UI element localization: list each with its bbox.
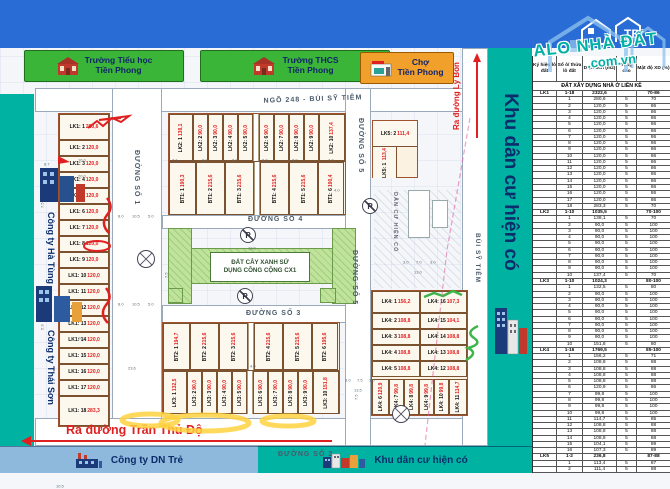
lot: BT1: 1190,3 [169, 162, 196, 215]
lot-code: LK1: 1 [70, 124, 85, 130]
lot: BT2: 5215,6 [283, 323, 312, 370]
lot-code: LK3: 2 [192, 390, 198, 405]
lot-code: LK4: 13 [428, 350, 446, 356]
lot-code: LK2: 5 [243, 135, 249, 150]
landmark-market: Chợ Tiền Phong [360, 52, 454, 84]
lot: BT1: 6190,4 [318, 162, 344, 215]
dimension-label: 10.5 [56, 484, 64, 489]
market-name: Chợ [412, 57, 429, 67]
landmark-primary-school: Trường Tiểu học Tiền Phong [24, 50, 184, 82]
dimension-label: 8.0 [292, 158, 298, 163]
lot: LK3: 590,0 [232, 371, 247, 414]
lot-code: LK3: 9 [303, 390, 309, 405]
dimension-label: 5.0 [148, 302, 154, 307]
dimension-label: 8.7 [44, 162, 50, 167]
lot-code: BT2: 6 [322, 346, 328, 361]
lot-area: 137,4 [329, 122, 335, 135]
block-lk5: LK5: 2 111,4 LK5: 1 113,4 [372, 120, 418, 178]
lot-area: 90,0 [222, 379, 228, 389]
dimension-label: 7.0 [416, 260, 422, 265]
lot-area: 90,0 [207, 379, 213, 389]
lot: LK5: 2 111,4 [373, 121, 417, 147]
street-label-duong-so-2: ĐƯỜNG SỐ 2 [278, 451, 333, 458]
lot-code: LK4: 10 [439, 393, 445, 411]
lot-area: 215,6 [231, 332, 237, 345]
lot-area: 120,0 [87, 305, 100, 311]
dimension-label: 3.0 [369, 378, 375, 383]
lot-code: LK1: 8 [70, 241, 85, 247]
lot-code: BT2: 5 [295, 346, 301, 361]
lot-area: 108,8 [398, 366, 411, 372]
dimension-label: 8.0 [202, 158, 208, 163]
dimension-label: 7.5 [354, 282, 359, 288]
lot-area: 90,0 [213, 124, 219, 134]
lot: BT2: 6195,6 [312, 323, 338, 370]
dimension-label: 3.0 [345, 378, 351, 383]
market-icon [370, 60, 392, 77]
lot: LK1: 6120,0 [59, 204, 109, 220]
dimension-label: 7.5 [354, 394, 359, 400]
lot-code: LK4: 4 [382, 350, 397, 356]
table-section-title: ĐẤT XÂY DỰNG NHÀ Ở LIỀN KỀ [533, 82, 670, 91]
lot-code: LK4: 5 [382, 366, 397, 372]
lot: LK4: 3108,8 [372, 329, 420, 345]
dimension-label: 20.0 [78, 174, 86, 179]
lot-area: 99,8 [424, 384, 430, 394]
dimension-label: 23.6 [128, 366, 136, 371]
lot: LK4: 2108,8 [372, 313, 420, 329]
lot-area: 120,0 [87, 289, 100, 295]
lot-code: LK3: 6 [258, 390, 264, 405]
dimension-label: 12.0 [248, 246, 256, 251]
lot: LK1: 1280,6 [59, 114, 109, 140]
lot: LK2: 990,0 [304, 114, 319, 161]
dimension-label: 8.0 [232, 158, 238, 163]
green-area-label: ĐẤT CÂY XANH SỬ DỤNG CÔNG CỘNG CX1 [210, 252, 310, 282]
school1-name: Trường Tiểu học [85, 55, 153, 65]
lot-code: LK1: 16 [68, 369, 86, 375]
tree-square [320, 288, 336, 303]
lot: LK1: 8120,0 [59, 236, 109, 252]
dimension-label: 7.5 [357, 378, 363, 383]
lot: LK3: 890,0 [283, 371, 298, 414]
lot-code: LK3: 8 [288, 390, 294, 405]
lot-code: LK1: 18 [68, 408, 86, 414]
table-cell: 111,4 [583, 467, 617, 473]
lot: LK4: 11114,7 [449, 379, 467, 415]
lot-code: BT1: 5 [301, 188, 307, 203]
market-name2: Tiền Phong [397, 67, 443, 77]
lot-code: LK4: 11 [455, 395, 461, 413]
lot-area: 195,6 [322, 332, 328, 345]
exit-tran-thu-do-arrow [30, 440, 332, 442]
dimension-label: 4.0 [334, 188, 340, 193]
dimension-label: 3.0 [430, 260, 436, 265]
lot: LK4: 12108,8 [420, 361, 467, 377]
lot-area: 104,1 [447, 318, 460, 324]
lot-area: 151,8 [323, 377, 329, 390]
lot-area: 156,2 [398, 299, 411, 305]
lot-area: 90,0 [192, 379, 198, 389]
lot: LK3: 10151,8 [313, 371, 339, 414]
lot: LK4: 1156,2 [372, 291, 420, 313]
lot-area: 120,0 [86, 225, 99, 231]
lot: LK4: 999,8 [419, 379, 434, 415]
company-thai-son-icon [32, 272, 86, 324]
lot-area: 108,8 [398, 318, 411, 324]
lot: LK1: 18283,3 [59, 396, 109, 426]
dimension-label: 3.0 [403, 260, 409, 265]
lot-area: 90,0 [294, 124, 300, 134]
lot-area: 90,0 [228, 124, 234, 134]
lot: LK3: 290,0 [187, 371, 202, 414]
parking-icon: P [362, 198, 378, 214]
lot-area: 120,0 [86, 209, 99, 215]
lot-code: LK4: 3 [382, 334, 397, 340]
lot-area: 132,5 [172, 378, 178, 391]
lot: LK5: 1 113,4 [373, 147, 397, 178]
dimension-label: 10.5 [132, 214, 140, 219]
lot-area: 215,6 [237, 174, 243, 187]
lot-code: LK4: 6 [378, 396, 384, 411]
school1-name2: Tiền Phong [95, 65, 141, 75]
lot: LK3: 990,0 [298, 371, 313, 414]
lot-code: BT1: 3 [237, 188, 243, 203]
lot: BT1: 2215,6 [196, 162, 225, 215]
lot-code: LK2: 3 [213, 135, 219, 150]
lot-area: 120,0 [87, 385, 100, 391]
lot: LK4: 16107,3 [420, 291, 467, 313]
block-north: LK2: 1138,1LK2: 290,0LK2: 390,0LK2: 490,… [168, 113, 346, 215]
lot-code: LK3: 5 [237, 390, 243, 405]
lot-code: LK1: 9 [70, 257, 85, 263]
lot-area: 120,0 [86, 241, 99, 247]
lot: LK3: 490,0 [217, 371, 232, 414]
company-dn-tre-label: Công ty DN Trẻ [111, 455, 183, 466]
lot: LK4: 14108,8 [420, 329, 467, 345]
lot-area: 90,0 [258, 379, 264, 389]
lot-code: BT1: 4 [272, 188, 278, 203]
lot-code: LK1: 6 [70, 209, 85, 215]
dimension-label: 20.0 [78, 336, 86, 341]
street-label-duong-so-5: ĐƯỜNG SỐ 5 [351, 250, 358, 305]
lot-area: 120,0 [87, 369, 100, 375]
buildings-icon [493, 298, 529, 356]
lot: LK4: 6120,9 [372, 379, 389, 415]
cx1-line2: DỤNG CÔNG CỘNG CX1 [224, 267, 297, 275]
lot-area: 108,8 [447, 334, 460, 340]
lot-code: LK4: 9 [424, 395, 430, 410]
lot: LK2: 1138,1 [169, 114, 193, 161]
lot-area: 90,0 [243, 124, 249, 134]
lot: LK2: 10137,4 [319, 114, 345, 161]
lot: LK2: 890,0 [289, 114, 304, 161]
lot-code: BT2: 3 [231, 346, 237, 361]
lot-area: 113,4 [382, 148, 388, 160]
block-lk4: LK4: 1156,2LK4: 2108,8LK4: 3108,8LK4: 41… [371, 290, 468, 416]
lot-area: 120,0 [87, 273, 100, 279]
dimension-label: 13.5 [354, 388, 362, 393]
lot-area: 90,0 [264, 124, 270, 134]
lot-area: 90,0 [288, 379, 294, 389]
lot-code: LK2: 6 [264, 135, 270, 150]
lot: BT2: 4215,6 [254, 323, 283, 370]
lot-area: 190,3 [180, 174, 186, 187]
street-label-duong-so-3: ĐƯỜNG SỐ 3 [246, 310, 301, 317]
lot-area: 99,8 [439, 383, 445, 393]
lot-code: LK3: 7 [273, 390, 279, 405]
exit-tran-thu-do-arrowhead [21, 436, 31, 446]
lot-code: LK2: 4 [228, 135, 234, 150]
lot: LK1: 7120,0 [59, 220, 109, 236]
compass-icon [392, 405, 410, 423]
street-label-duong-so-4: ĐƯỜNG SỐ 4 [248, 216, 303, 223]
dimension-label: 5.0 [148, 214, 154, 219]
lot: LK3: 790,0 [268, 371, 283, 414]
exit-ly-bon-arrowhead [473, 53, 481, 62]
lot: LK4: 1099,8 [434, 379, 449, 415]
lot: BT2: 2215,6 [190, 323, 219, 370]
lot-code: LK3: 10 [323, 390, 329, 408]
lot: LK2: 490,0 [223, 114, 238, 161]
lot-code: LK4: 15 [428, 318, 446, 324]
lot: BT1: 4215,6 [260, 162, 289, 215]
road-duong-so-1 [112, 88, 162, 445]
company-dn-tre-banner: Công ty DN Trẻ [0, 446, 258, 473]
lot-code: LK2: 10 [329, 135, 335, 153]
lot-code: LK2: 2 [198, 135, 204, 150]
lot-code: LK2: 8 [294, 135, 300, 150]
exit-ly-bon-label: Ra đường Lý Bôn [452, 62, 461, 130]
lot-code: BT2: 2 [202, 346, 208, 361]
table-row: 2111,4588 [533, 467, 670, 473]
lot-area: 107,3 [447, 299, 460, 305]
lot-area: 283,3 [87, 408, 100, 414]
dimension-label: 10.5 [132, 302, 140, 307]
lot-area: 138,1 [178, 123, 184, 136]
lot-area: 90,0 [273, 379, 279, 389]
lot-area: 120,0 [87, 337, 100, 343]
table-cell: 5 [617, 467, 637, 473]
dimension-label: 8.0 [262, 158, 268, 163]
lot-area: 120,0 [87, 353, 100, 359]
dimension-label: 5.3 [40, 324, 45, 330]
school-icon [56, 57, 80, 76]
lot-code: BT1: 2 [208, 188, 214, 203]
lot-area: 90,0 [237, 379, 243, 389]
existing-residents-label: DÂN CƯ HIỆN CÓ [392, 192, 398, 252]
lot-area: 90,0 [198, 124, 204, 134]
company-thai-son-label: Công ty Thái Sơn [46, 330, 56, 405]
lot-code: LK1: 7 [70, 225, 85, 231]
street-label-duong-so-1: ĐƯỜNG SỐ 1 [133, 150, 140, 205]
existing-building-outline [408, 190, 430, 238]
lot: BT1: 3215,6 [225, 162, 254, 215]
lot: BT2: 3215,6 [219, 323, 248, 370]
table-cell: 2 [557, 467, 583, 473]
table-cell [533, 467, 557, 473]
cx1-line1: ĐẤT CÂY XANH SỬ [231, 259, 289, 267]
lot-area: 99,8 [409, 384, 415, 394]
lot: LK3: 390,0 [202, 371, 217, 414]
lot: LK4: 15104,1 [420, 313, 467, 329]
lot: LK2: 290,0 [193, 114, 208, 161]
lot-area: 108,8 [447, 350, 460, 356]
existing-building-outline [432, 200, 448, 228]
street-label-duong-so-5: ĐƯỜNG SỐ 5 [357, 118, 364, 173]
lot-code: LK4: 8 [409, 395, 415, 410]
lot-code: LK5: 1 [382, 162, 388, 177]
dimension-label: 7.0 [328, 158, 334, 163]
lot-area: 90,0 [303, 379, 309, 389]
lot-code: LK4: 2 [382, 318, 397, 324]
lot-area: 120,9 [378, 383, 384, 396]
dimension-label: 7.1 [172, 158, 178, 163]
lot: LK2: 590,0 [238, 114, 253, 161]
dimension-label: 8.0 [118, 302, 124, 307]
street-label-bui-sy-tiem: BÙI SỸ TIÊM [474, 233, 481, 283]
lot: LK1: 9120,0 [59, 252, 109, 268]
parking-icon: P [237, 288, 253, 304]
lot: LK4: 13108,8 [420, 345, 467, 361]
lot-area: 108,8 [447, 366, 460, 372]
lot-code: LK4: 12 [428, 366, 446, 372]
lot-code: BT1: 1 [180, 188, 186, 203]
watermark-house-icon [540, 12, 666, 76]
lot-code: LK1: 15 [68, 353, 86, 359]
lot: LK3: 1132,5 [163, 371, 187, 414]
lot-area: 120,0 [87, 321, 100, 327]
school2-name2: Tiền Phong [287, 65, 333, 75]
exit-ly-bon-arrow [476, 62, 478, 138]
lot-code: LK3: 1 [172, 392, 178, 407]
existing-area-banner-label: Khu dân cư hiện có [374, 455, 467, 466]
lot-area: 215,6 [202, 332, 208, 345]
school-icon [251, 57, 277, 76]
existing-area-sidebar-label: Khu dân cư hiện có [488, 72, 532, 292]
lot-code: LK4: 14 [428, 334, 446, 340]
lot-code: LK2: 1 [178, 137, 184, 152]
lot-area: 90,0 [279, 124, 285, 134]
lot-area: 111,4 [397, 131, 409, 137]
lot-code: LK5: 2 [381, 131, 396, 137]
lot: LK1: 17120,0 [59, 380, 109, 396]
lot-area: 90,0 [309, 124, 315, 134]
table-cell: 88 [637, 467, 670, 473]
lot-area: 108,8 [398, 334, 411, 340]
lot: LK4: 5108,8 [372, 361, 420, 377]
lot-area: 215,6 [266, 332, 272, 345]
lot: LK1: 15120,0 [59, 348, 109, 364]
lot-area: 99,8 [394, 384, 400, 394]
lot: LK2: 390,0 [208, 114, 223, 161]
lot-code: BT2: 1 [174, 346, 180, 361]
lot: BT2: 1194,7 [163, 323, 190, 370]
lot-area: 215,6 [272, 174, 278, 187]
lot-area: 108,8 [398, 350, 411, 356]
lot-code: LK2: 9 [309, 135, 315, 150]
lot-area: 280,6 [86, 124, 99, 130]
compass-icon [137, 250, 155, 268]
lot-area: 215,6 [301, 174, 307, 187]
tree-square [168, 288, 183, 303]
lot-area: 190,4 [328, 174, 334, 187]
lot-code: LK3: 4 [222, 390, 228, 405]
dimension-label: 4.0 [250, 364, 256, 369]
canal-strip [0, 94, 34, 446]
lot-code: LK2: 7 [279, 135, 285, 150]
factory-icon [75, 451, 103, 469]
school2-name: Trường THCS [282, 55, 338, 65]
dimension-label: 8.0 [118, 214, 124, 219]
parking-icon: P [240, 227, 256, 243]
lot: LK3: 690,0 [253, 371, 268, 414]
lot: LK2: 690,0 [259, 114, 274, 161]
lot-area: 120,0 [86, 257, 99, 263]
lot-area: 215,6 [295, 332, 301, 345]
lot: BT1: 5215,6 [289, 162, 318, 215]
lot-statistics-table[interactable]: Ký hiệu lô đấtSố ô/ thửa lô đấtDiện tích… [532, 56, 670, 473]
lot-area: 194,7 [174, 332, 180, 345]
lot-area: 114,7 [455, 381, 461, 393]
lot-code: LK4: 1 [382, 299, 397, 305]
dimension-label: 7.5 [164, 272, 169, 278]
exit-tran-thu-do-label: Ra đường Trần Thủ Độ [66, 423, 203, 437]
dimension-label: 16.0 [78, 158, 86, 163]
dimension-label: 13.0 [414, 270, 422, 275]
lot-code: LK3: 3 [207, 390, 213, 405]
lot: LK1: 16120,0 [59, 364, 109, 380]
lot: LK4: 4108,8 [372, 345, 420, 361]
lot-code: LK4: 16 [428, 299, 446, 305]
lot-code: LK1: 17 [68, 385, 86, 391]
lot-area: 215,6 [208, 174, 214, 187]
dimension-label: 7.5 [40, 202, 45, 208]
lot-code: BT2: 4 [266, 346, 272, 361]
lot: LK2: 790,0 [274, 114, 289, 161]
